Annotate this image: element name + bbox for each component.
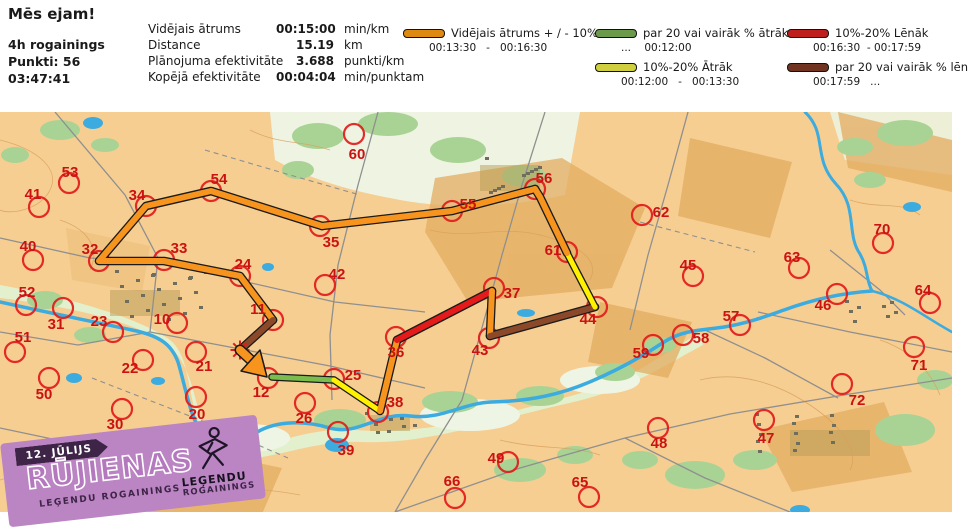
building bbox=[413, 424, 417, 427]
control-number-49: 49 bbox=[488, 450, 505, 467]
building bbox=[526, 172, 530, 175]
legend-item-much-slower: par 20 vai vairāk % lēnāk 00:17:59 ... bbox=[787, 60, 968, 88]
control-number-54: 54 bbox=[211, 171, 228, 188]
control-number-33: 33 bbox=[171, 240, 188, 257]
building bbox=[796, 442, 800, 445]
page-title: Mēs ejam! bbox=[8, 5, 95, 23]
building bbox=[374, 423, 378, 426]
control-number-48: 48 bbox=[651, 435, 668, 452]
building bbox=[376, 431, 380, 434]
stat-row-plan-efficiency: Plānojuma efektivitāte3.688punkti/km bbox=[148, 53, 424, 69]
building bbox=[757, 423, 761, 426]
control-number-64: 64 bbox=[915, 282, 932, 299]
control-number-34: 34 bbox=[129, 187, 146, 204]
legend-range: ... 00:12:00 bbox=[621, 42, 788, 54]
building bbox=[792, 422, 796, 425]
building bbox=[151, 274, 155, 277]
control-number-53: 53 bbox=[62, 164, 79, 181]
stat-row-avg-pace: Vidējais ātrums00:15:00min/km bbox=[148, 21, 424, 37]
legend-swatch-orange bbox=[403, 29, 445, 38]
control-number-22: 22 bbox=[122, 360, 139, 377]
control-number-38: 38 bbox=[387, 394, 404, 411]
building bbox=[793, 449, 797, 452]
building bbox=[830, 414, 834, 417]
control-number-57: 57 bbox=[723, 308, 740, 325]
building bbox=[485, 157, 489, 160]
legend-item-much-faster: par 20 vai vairāk % ātrāk ... 00:12:00 bbox=[595, 26, 788, 54]
legend-swatch-green bbox=[595, 29, 637, 38]
control-number-31: 31 bbox=[48, 316, 65, 333]
building bbox=[389, 418, 393, 421]
control-number-46: 46 bbox=[815, 297, 832, 314]
control-number-59: 59 bbox=[633, 345, 650, 362]
building bbox=[493, 189, 497, 192]
legend-swatch-brown bbox=[787, 63, 829, 72]
control-number-45: 45 bbox=[680, 257, 697, 274]
control-number-66: 66 bbox=[444, 473, 461, 490]
building bbox=[402, 425, 406, 428]
control-number-26: 26 bbox=[296, 410, 313, 427]
control-number-35: 35 bbox=[323, 234, 340, 251]
building bbox=[831, 441, 835, 444]
stats-header: Mēs ejam! 4h rogainings Punkti: 56 03:47… bbox=[0, 0, 968, 112]
building bbox=[194, 291, 198, 294]
control-number-50: 50 bbox=[36, 386, 53, 403]
control-number-37: 37 bbox=[504, 285, 521, 302]
control-number-62: 62 bbox=[653, 204, 670, 221]
total-time: 03:47:41 bbox=[8, 70, 105, 87]
building bbox=[832, 424, 836, 427]
building bbox=[199, 306, 203, 309]
control-number-41: 41 bbox=[25, 186, 42, 203]
building bbox=[794, 432, 798, 435]
building bbox=[130, 315, 134, 318]
building bbox=[157, 288, 161, 291]
legend-range: 00:17:59 ... bbox=[813, 76, 968, 88]
building bbox=[522, 174, 526, 177]
legend-range: 00:13:30 - 00:16:30 bbox=[429, 42, 598, 54]
control-number-56: 56 bbox=[536, 170, 553, 187]
control-number-11: 11 bbox=[250, 301, 266, 318]
stats-table: Vidējais ātrums00:15:00min/km Distance15… bbox=[148, 21, 424, 85]
control-number-42: 42 bbox=[329, 266, 346, 283]
event-name: 4h rogainings bbox=[8, 36, 105, 53]
control-number-72: 72 bbox=[849, 392, 866, 409]
building bbox=[890, 301, 894, 304]
building bbox=[497, 187, 501, 190]
legend-range: 00:16:30 - 00:17:59 bbox=[813, 42, 928, 54]
building bbox=[853, 320, 857, 323]
building bbox=[173, 282, 177, 285]
control-number-24: 24 bbox=[235, 256, 252, 273]
orienteer-logo-icon bbox=[186, 423, 243, 477]
control-number-39: 39 bbox=[338, 442, 355, 459]
control-number-40: 40 bbox=[20, 238, 37, 255]
control-number-63: 63 bbox=[784, 249, 801, 266]
building bbox=[178, 297, 182, 300]
control-number-32: 32 bbox=[82, 241, 99, 258]
legend-item-average: Vidējais ātrums + / - 10% 00:13:30 - 00:… bbox=[403, 26, 598, 54]
building bbox=[758, 450, 762, 453]
legend-item-slower: 10%-20% Lēnāk 00:16:30 - 00:17:59 bbox=[787, 26, 928, 54]
legend-range: 00:12:00 - 00:13:30 bbox=[621, 76, 739, 88]
control-number-52: 52 bbox=[19, 284, 36, 301]
legend-item-faster: 10%-20% Ātrāk 00:12:00 - 00:13:30 bbox=[595, 60, 739, 88]
route-leg[interactable] bbox=[490, 291, 492, 336]
control-number-58: 58 bbox=[693, 330, 710, 347]
control-number-10: 10 bbox=[154, 311, 171, 328]
control-number-23: 23 bbox=[91, 313, 108, 330]
control-number-61: 61 bbox=[545, 242, 562, 259]
building bbox=[136, 279, 140, 282]
building bbox=[849, 310, 853, 313]
building bbox=[387, 430, 391, 433]
building bbox=[882, 305, 886, 308]
control-number-60: 60 bbox=[349, 146, 366, 163]
control-number-51: 51 bbox=[15, 329, 32, 346]
points-total: Punkti: 56 bbox=[8, 53, 105, 70]
building bbox=[188, 277, 192, 280]
building bbox=[400, 417, 404, 420]
building bbox=[120, 285, 124, 288]
legend-swatch-yellow bbox=[595, 63, 637, 72]
building bbox=[501, 185, 505, 188]
control-number-47: 47 bbox=[758, 430, 775, 447]
building bbox=[857, 306, 861, 309]
control-number-43: 43 bbox=[472, 342, 489, 359]
control-number-71: 71 bbox=[911, 357, 928, 374]
route-leg[interactable] bbox=[272, 377, 334, 380]
control-number-21: 21 bbox=[196, 358, 213, 375]
building bbox=[125, 300, 129, 303]
building bbox=[894, 311, 898, 314]
route-analysis-page: { "header": { "title": "Mēs ejam!", "eve… bbox=[0, 0, 968, 522]
event-info: 4h rogainings Punkti: 56 03:47:41 bbox=[8, 36, 105, 87]
legend-swatch-red bbox=[787, 29, 829, 38]
stat-row-distance: Distance15.19km bbox=[148, 37, 424, 53]
building bbox=[530, 170, 534, 173]
building bbox=[489, 191, 493, 194]
building bbox=[146, 309, 150, 312]
building bbox=[162, 303, 166, 306]
control-number-25: 25 bbox=[345, 367, 362, 384]
building bbox=[795, 415, 799, 418]
building bbox=[538, 166, 542, 169]
building bbox=[141, 294, 145, 297]
building bbox=[886, 315, 890, 318]
control-number-44: 44 bbox=[580, 311, 597, 328]
control-number-65: 65 bbox=[572, 474, 589, 491]
building bbox=[115, 270, 119, 273]
control-number-12: 12 bbox=[253, 384, 270, 401]
control-number-55: 55 bbox=[460, 196, 477, 213]
stat-row-total-efficiency: Kopējā efektivitāte00:04:04min/punktam bbox=[148, 69, 424, 85]
control-number-70: 70 bbox=[874, 221, 891, 238]
control-number-36: 36 bbox=[388, 344, 405, 361]
building bbox=[829, 431, 833, 434]
